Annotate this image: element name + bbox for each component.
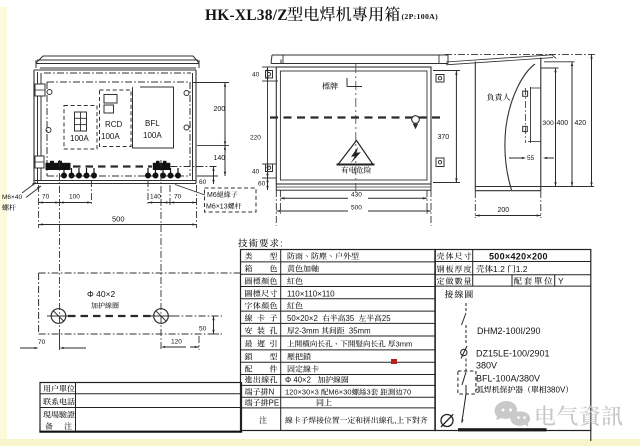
- svg-text::: :: [280, 239, 284, 250]
- svg-text:1.2: 1.2: [493, 264, 507, 274]
- svg-text:BFL: BFL: [145, 119, 160, 128]
- svg-text:380V: 380V: [547, 386, 566, 395]
- svg-text:60: 60: [199, 179, 207, 186]
- svg-text:100A: 100A: [101, 132, 120, 141]
- svg-text:PE: PE: [269, 399, 280, 408]
- svg-text:2-3mm: 2-3mm: [295, 326, 321, 335]
- svg-text:50×20×2: 50×20×2: [287, 314, 322, 323]
- svg-text:35: 35: [346, 314, 359, 323]
- svg-text:420: 420: [575, 120, 587, 127]
- svg-text:120×30×3: 120×30×3: [285, 388, 321, 397]
- svg-text:70: 70: [42, 194, 50, 201]
- svg-text:RCD: RCD: [105, 120, 123, 129]
- svg-text:100A: 100A: [143, 131, 162, 140]
- svg-text:DHM2-100I/290: DHM2-100I/290: [477, 326, 541, 336]
- svg-text:35mm: 35mm: [345, 326, 371, 335]
- svg-text:220: 220: [250, 135, 261, 142]
- svg-text:M6: M6: [207, 192, 217, 199]
- svg-text:25: 25: [382, 314, 391, 323]
- svg-text:70: 70: [38, 339, 46, 346]
- svg-text:400: 400: [557, 120, 569, 127]
- svg-text:DZ15LE-100/2901: DZ15LE-100/2901: [476, 349, 550, 359]
- svg-text:500: 500: [351, 205, 362, 212]
- svg-text:140: 140: [150, 194, 161, 201]
- svg-text:40: 40: [252, 169, 260, 176]
- svg-text:Φ 40×2: Φ 40×2: [87, 289, 116, 299]
- svg-text:300: 300: [543, 120, 555, 127]
- svg-text:70: 70: [403, 388, 411, 397]
- svg-text:1.2: 1.2: [516, 264, 528, 274]
- svg-text:500×420×200: 500×420×200: [489, 252, 548, 262]
- svg-text:110×110×110: 110×110×110: [287, 289, 335, 298]
- svg-text:200: 200: [498, 207, 510, 214]
- svg-text:70: 70: [174, 194, 182, 201]
- svg-text:370: 370: [438, 134, 450, 141]
- svg-text:100A: 100A: [70, 134, 89, 143]
- svg-text:430: 430: [351, 192, 362, 199]
- svg-text:M6×40: M6×40: [2, 194, 22, 201]
- svg-text:40: 40: [252, 72, 260, 79]
- svg-text:3mm: 3mm: [396, 340, 413, 349]
- svg-text:M6×13: M6×13: [206, 204, 228, 211]
- svg-text:Y: Y: [558, 276, 564, 286]
- svg-text:HK-XL38/Z: HK-XL38/Z: [205, 7, 288, 24]
- svg-text:M6×30: M6×30: [328, 388, 351, 397]
- svg-text:Φ 40×2: Φ 40×2: [285, 376, 317, 385]
- svg-text:55: 55: [527, 155, 535, 162]
- svg-text:500: 500: [112, 215, 125, 224]
- svg-text:100: 100: [69, 194, 80, 201]
- svg-text:3: 3: [367, 388, 371, 397]
- svg-text:380V: 380V: [476, 361, 497, 371]
- svg-text:120: 120: [171, 339, 182, 346]
- svg-text:(2P:100A): (2P:100A): [402, 12, 439, 21]
- svg-text:BFL-100A/380V: BFL-100A/380V: [476, 374, 540, 384]
- svg-text:200: 200: [214, 106, 226, 113]
- svg-text:50: 50: [199, 326, 207, 333]
- svg-text:140: 140: [214, 155, 226, 162]
- svg-text:N: N: [269, 388, 275, 397]
- svg-text:,: ,: [394, 416, 396, 425]
- svg-text:60: 60: [258, 181, 266, 188]
